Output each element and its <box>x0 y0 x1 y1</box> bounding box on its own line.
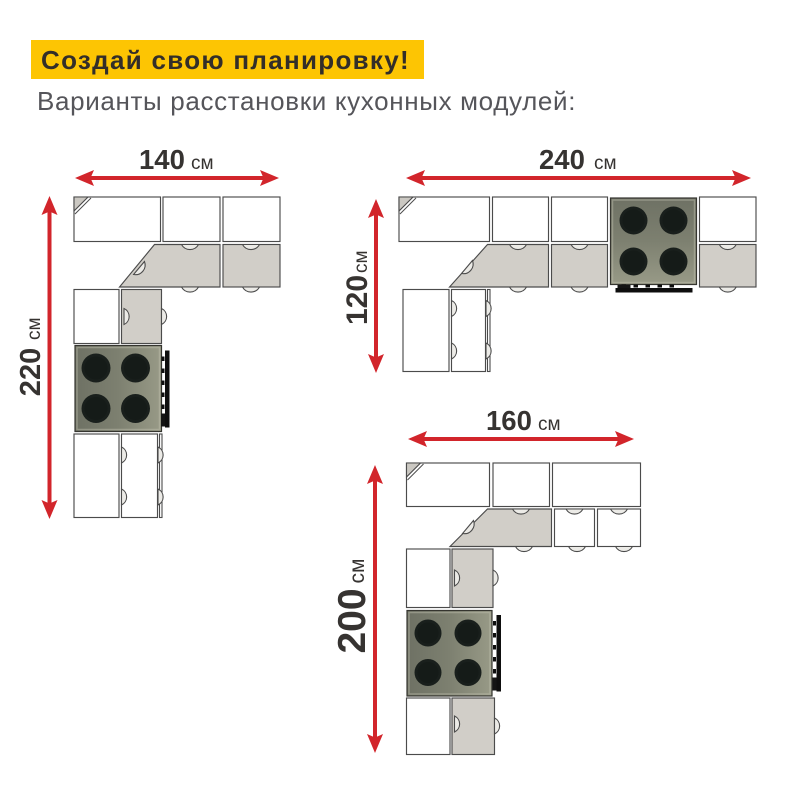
svg-text:220: 220 <box>15 348 47 396</box>
svg-text:см: см <box>538 414 561 435</box>
svg-text:120: 120 <box>341 275 374 325</box>
svg-text:см: см <box>346 559 369 584</box>
svg-text:см: см <box>351 250 372 273</box>
svg-text:Варианты расстановки кухонных: Варианты расстановки кухонных модулей: <box>37 86 576 116</box>
svg-text:см: см <box>191 153 214 174</box>
svg-text:см: см <box>24 317 45 340</box>
svg-text:см: см <box>594 153 617 174</box>
svg-text:240: 240 <box>539 144 585 175</box>
svg-text:200: 200 <box>331 588 374 653</box>
svg-text:160: 160 <box>486 405 532 436</box>
svg-text:Создай свою планировку!: Создай свою планировку! <box>41 45 410 75</box>
svg-text:140: 140 <box>139 144 185 175</box>
